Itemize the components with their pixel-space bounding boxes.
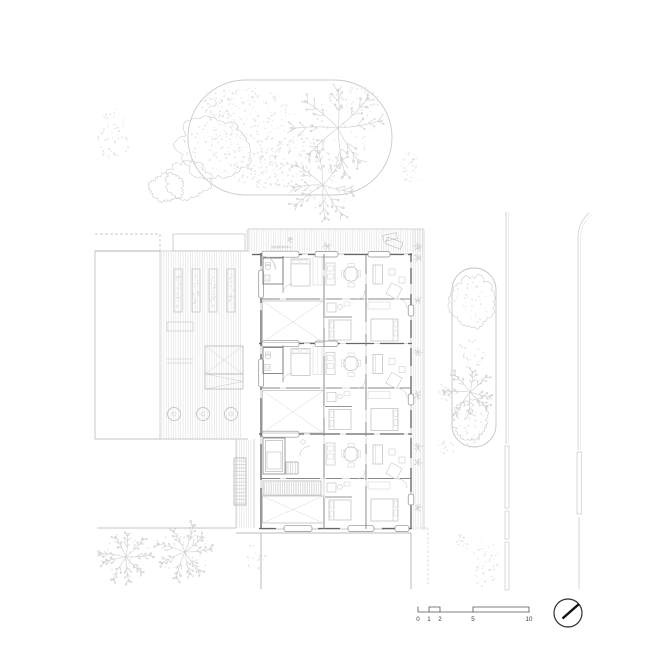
svg-text:10: 10 (526, 616, 533, 623)
svg-text:0: 0 (416, 616, 420, 623)
svg-text:2: 2 (438, 616, 442, 623)
svg-text:1: 1 (427, 616, 431, 623)
svg-text:5: 5 (471, 616, 475, 623)
